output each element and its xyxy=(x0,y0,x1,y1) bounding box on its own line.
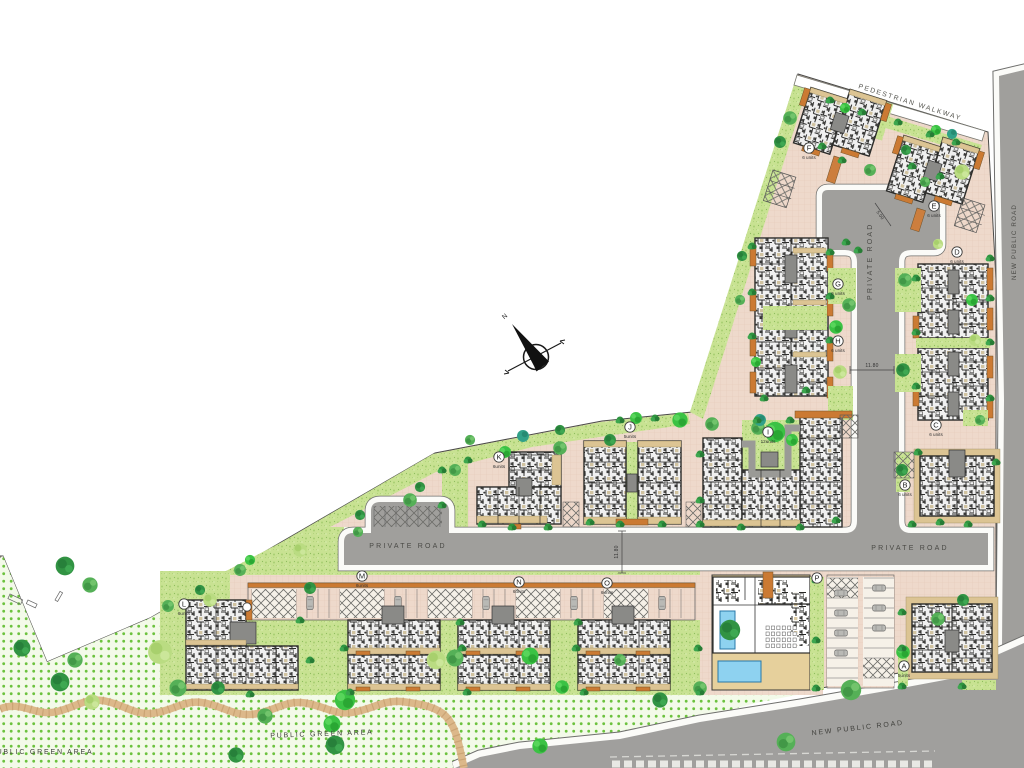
svg-text:J: J xyxy=(628,423,632,432)
svg-text:M: M xyxy=(359,572,365,581)
svg-text:11.80: 11.80 xyxy=(865,363,878,369)
svg-text:6 units: 6 units xyxy=(927,213,941,218)
svg-text:I: I xyxy=(767,428,769,437)
svg-text:5units: 5units xyxy=(898,673,911,678)
svg-text:6 units: 6 units xyxy=(898,492,912,497)
svg-text:E: E xyxy=(931,202,936,211)
svg-text:6 units: 6 units xyxy=(831,291,845,296)
svg-text:L: L xyxy=(182,600,186,609)
svg-text:P: P xyxy=(814,574,819,583)
svg-text:6units: 6units xyxy=(601,590,614,595)
svg-text:6 units: 6 units xyxy=(929,432,943,437)
svg-text:K: K xyxy=(496,453,501,462)
svg-text:N: N xyxy=(516,578,521,587)
svg-text:11.80: 11.80 xyxy=(614,545,620,558)
svg-text:A: A xyxy=(901,662,906,671)
svg-text:6 units: 6 units xyxy=(802,155,816,160)
svg-text:5units: 5units xyxy=(624,434,637,439)
svg-text:O: O xyxy=(604,579,610,588)
svg-text:B: B xyxy=(902,481,907,490)
svg-text:6units: 6units xyxy=(178,611,191,616)
svg-text:H: H xyxy=(835,337,840,346)
svg-text:C: C xyxy=(933,421,939,430)
svg-text:G: G xyxy=(835,280,841,289)
svg-text:12units: 12units xyxy=(761,439,777,444)
svg-text:PRIVATE ROAD: PRIVATE ROAD xyxy=(871,545,948,552)
svg-text:UBLIC GREEN AREA: UBLIC GREEN AREA xyxy=(0,749,93,756)
svg-text:D: D xyxy=(954,248,960,257)
svg-text:6units: 6units xyxy=(356,583,369,588)
svg-text:6units: 6units xyxy=(493,464,506,469)
svg-text:F: F xyxy=(807,144,812,153)
svg-text:6 units: 6 units xyxy=(831,348,845,353)
svg-text:6units: 6units xyxy=(513,589,526,594)
svg-text:NEW PUBLIC ROAD: NEW PUBLIC ROAD xyxy=(1011,204,1018,280)
svg-text:6 units: 6 units xyxy=(950,259,964,264)
svg-text:PRIVATE ROAD: PRIVATE ROAD xyxy=(867,223,874,300)
svg-text:PRIVATE ROAD: PRIVATE ROAD xyxy=(369,543,446,550)
